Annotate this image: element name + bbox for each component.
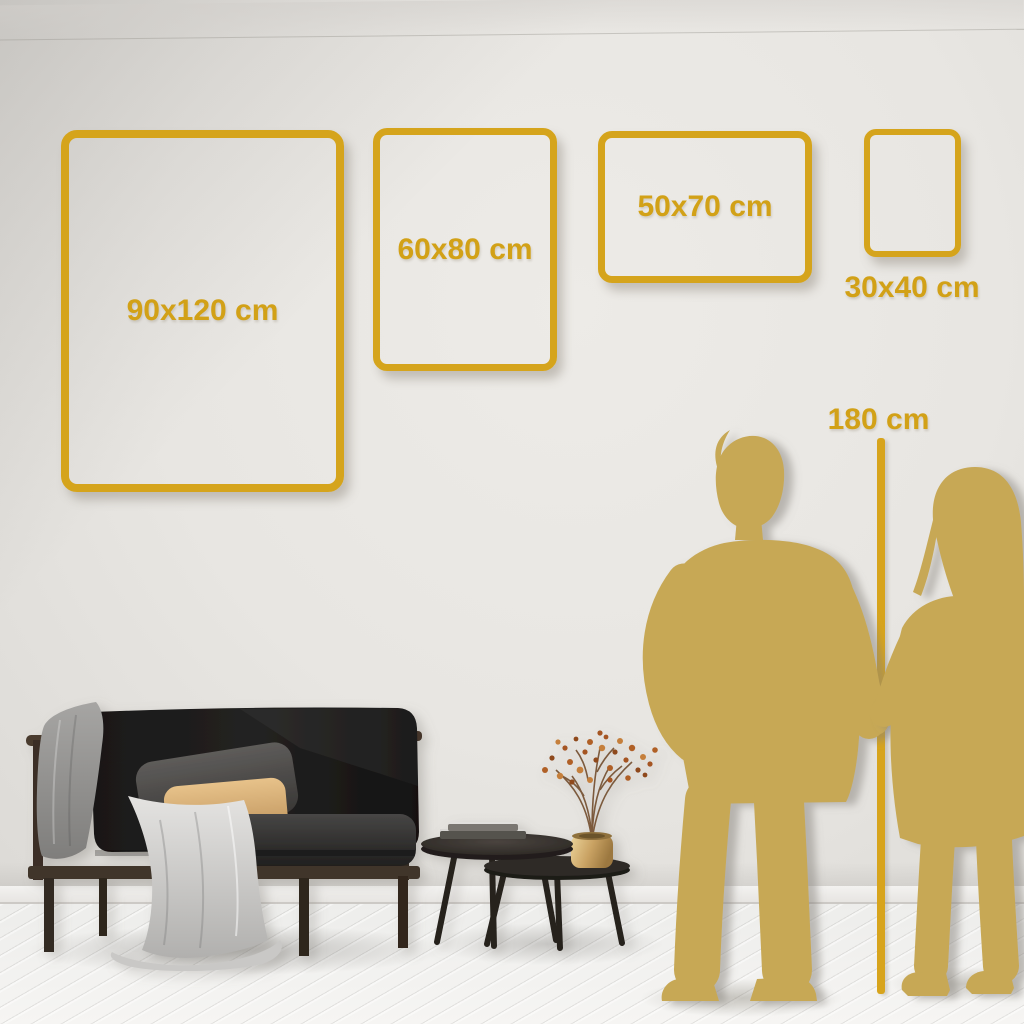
sofa [26, 702, 422, 971]
book-top [448, 824, 518, 831]
man-right-leg [779, 802, 787, 970]
sofa-leg [398, 876, 408, 948]
scene-artwork [0, 0, 1024, 1024]
plant-berries [542, 730, 658, 784]
sofa-leg [44, 878, 54, 952]
man-head [716, 436, 784, 529]
woman-silhouette [870, 467, 1024, 996]
woman-left-leg [931, 840, 938, 966]
man-left-leg [697, 800, 708, 970]
woman-hair-strand [913, 520, 938, 596]
man-left-foot [662, 978, 719, 1001]
coffee-tables [421, 730, 658, 948]
man-neck [735, 518, 763, 540]
book-pages [448, 822, 518, 824]
size-guide-image: 90x120 cm 60x80 cm 50x70 cm 30x40 cm 180… [0, 0, 1024, 1024]
vase-opening [579, 834, 605, 839]
man-left-hand [683, 732, 713, 762]
book-bottom [440, 831, 526, 839]
woman-right-foot [966, 971, 1014, 994]
woman-left-foot [902, 972, 950, 996]
woman-right-leg [994, 840, 1001, 966]
sofa-leg [299, 878, 309, 956]
woman-hand [870, 699, 898, 727]
sofa-leg [99, 878, 107, 936]
man-silhouette [659, 430, 886, 1001]
